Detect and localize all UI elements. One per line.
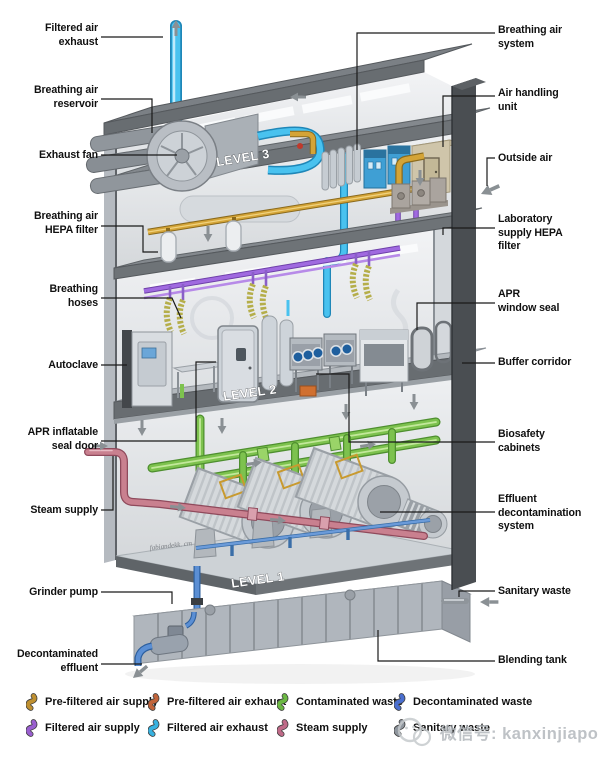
legend-label: Decontaminated waste bbox=[413, 696, 532, 708]
callout-laboratory-supply-hepa-filter: Laboratory supply HEPA filter bbox=[498, 213, 563, 254]
legend-label: Pre-filtered air exhaust bbox=[167, 696, 286, 708]
callout-blending-tank: Blending tank bbox=[498, 654, 567, 668]
sanitary-arrow-icon bbox=[480, 597, 498, 607]
callout-apr-window-seal: APR window seal bbox=[498, 288, 559, 315]
outside-air-arrow-icon bbox=[479, 181, 502, 199]
supply-crate bbox=[300, 386, 316, 396]
callout-exhaust-fan: Exhaust fan bbox=[39, 149, 98, 163]
callout-breathing-air-reservoir: Breathing air reservoir bbox=[34, 84, 98, 111]
valve bbox=[297, 143, 303, 149]
autoclave bbox=[122, 330, 172, 408]
legend-label: Pre-filtered air supply bbox=[45, 696, 158, 708]
legend-label: Filtered air exhaust bbox=[167, 722, 268, 734]
pipe-icon bbox=[277, 693, 292, 711]
callout-biosafety-cabinets: Biosafety cabinets bbox=[498, 428, 545, 455]
callout-breathing-hoses: Breathing hoses bbox=[49, 283, 98, 310]
pipe-icon bbox=[26, 719, 41, 737]
legend-label: Contaminated waste bbox=[296, 696, 403, 708]
legend-label: Filtered air supply bbox=[45, 722, 140, 734]
legend-label: Sanitary waste bbox=[413, 722, 490, 734]
callout-filtered-air-exhaust: Filtered air exhaust bbox=[45, 22, 98, 49]
callout-autoclave: Autoclave bbox=[48, 359, 98, 373]
callout-buffer-corridor: Buffer corridor bbox=[498, 356, 571, 370]
callout-breathing-air-hepa-filter: Breathing air HEPA filter bbox=[34, 210, 98, 237]
legend-steam-supply: Steam supply bbox=[277, 717, 368, 739]
callout-outside-air: Outside air bbox=[498, 152, 552, 166]
pipe-collar bbox=[191, 598, 203, 605]
legend-prefiltered-air-exhaust: Pre-filtered air exhaust bbox=[148, 691, 286, 713]
legend-contaminated-waste: Contaminated waste bbox=[277, 691, 403, 713]
callout-effluent-decontamination-system: Effluent decontamination system bbox=[498, 493, 581, 534]
callout-grinder-pump: Grinder pump bbox=[29, 586, 98, 600]
callout-steam-supply: Steam supply bbox=[30, 504, 98, 518]
pipe-icon bbox=[277, 719, 292, 737]
blending-tank bbox=[134, 581, 470, 664]
pipe-icon bbox=[394, 719, 409, 737]
legend-filtered-air-exhaust: Filtered air exhaust bbox=[148, 717, 268, 739]
legend-prefiltered-air-supply: Pre-filtered air supply bbox=[26, 691, 158, 713]
legend-sanitary-waste: Sanitary waste bbox=[394, 717, 490, 739]
callout-apr-inflatable-seal-door: APR inflatable seal door bbox=[28, 426, 98, 453]
callout-air-handling-unit: Air handling unit bbox=[498, 87, 559, 114]
pipe-icon bbox=[26, 693, 41, 711]
pipe-icon bbox=[148, 693, 163, 711]
right-wall bbox=[452, 78, 486, 590]
legend-decontaminated-waste: Decontaminated waste bbox=[394, 691, 532, 713]
legend-label: Steam supply bbox=[296, 722, 368, 734]
pipe-icon bbox=[148, 719, 163, 737]
diagram-canvas: fabiandekk. cm bbox=[0, 0, 600, 759]
callout-decontaminated-effluent: Decontaminated effluent bbox=[17, 648, 98, 675]
callout-breathing-air-system: Breathing air system bbox=[498, 24, 562, 51]
pipe-icon bbox=[394, 693, 409, 711]
legend-filtered-air-supply: Filtered air supply bbox=[26, 717, 140, 739]
callout-sanitary-waste: Sanitary waste bbox=[498, 585, 571, 599]
